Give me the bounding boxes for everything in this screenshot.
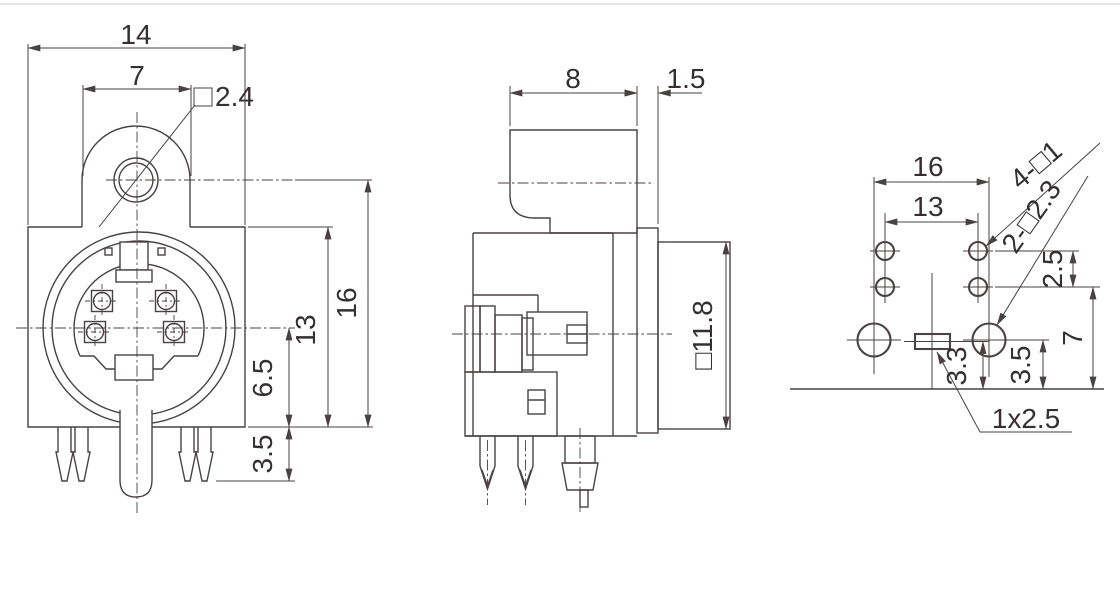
bottom-slot: [115, 355, 153, 380]
center-pin: [120, 410, 152, 497]
key-slot-base: [116, 270, 152, 282]
ring-notch-left: [105, 248, 112, 255]
dim-front-peg-length: 3.5: [247, 435, 278, 474]
side-view: 8 1.5 □11.8: [452, 63, 730, 512]
ring-notch-right: [158, 248, 165, 255]
dim-front-center-to-bottom: 6.5: [247, 359, 278, 398]
technical-drawing: 14 7 2.4 16 13 6.5 3.5: [0, 0, 1120, 608]
dim-front-overall-height: 16: [331, 287, 362, 318]
dim-footprint-slot-size: 1x2.5: [992, 403, 1061, 434]
dim-footprint-mount-offset: 3.5: [1005, 346, 1036, 385]
dim-side-ear-depth: 8: [565, 63, 581, 94]
footprint-view: 16 13 2.5 7 3.5 3.3 4-□1 2-□2.3 1x2.5: [790, 134, 1104, 434]
ear-hole-leader: [99, 105, 195, 227]
dim-footprint-slot-offset: 3.3: [941, 347, 972, 386]
front-view: 14 7 2.4 16 13 6.5 3.5: [16, 19, 373, 515]
dim-footprint-mount-pitch: 16: [912, 151, 943, 182]
drawing-canvas: 14 7 2.4 16 13 6.5 3.5: [0, 0, 1120, 608]
dim-side-shield-size: □11.8: [687, 300, 718, 369]
side-housing: [465, 233, 637, 436]
side-flange: [637, 228, 658, 433]
front-extension-lines: [28, 44, 373, 481]
dim-side-flange-thickness: 1.5: [667, 63, 706, 94]
dim-front-ear-width: 7: [129, 60, 145, 91]
dim-footprint-row-pitch: 2.5: [1037, 250, 1068, 289]
dim-front-ear-hole: 2.4: [215, 81, 254, 112]
square-symbol: [194, 88, 212, 106]
dim-front-body-height: 13: [290, 314, 321, 345]
side-extension-lines: [510, 86, 658, 224]
dim-footprint-depth: 7: [1057, 330, 1088, 346]
pin-holes: [78, 284, 191, 349]
side-housing-details: [465, 306, 587, 436]
side-ear-tab: [510, 130, 637, 233]
dim-footprint-pin-pitch: 13: [912, 191, 943, 222]
dim-front-overall-width: 14: [120, 19, 151, 50]
key-slot: [120, 242, 148, 270]
front-mounting-ear: [82, 126, 190, 227]
